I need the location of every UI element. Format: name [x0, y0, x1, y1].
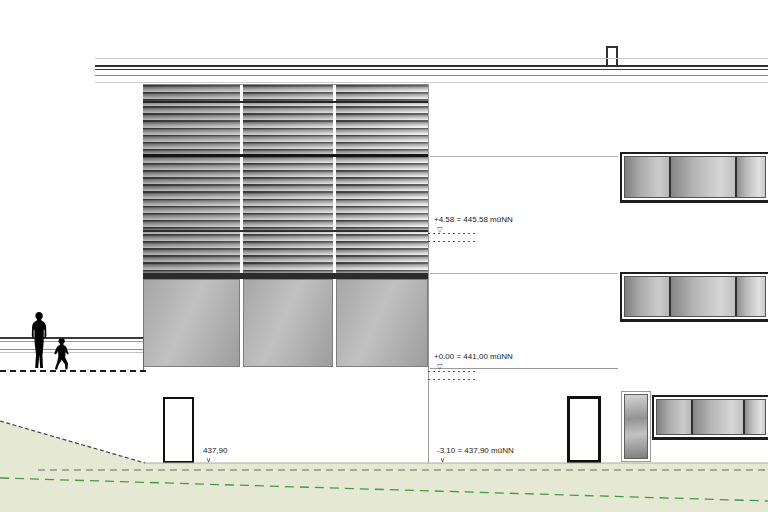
level-label: +0.00 = 441,00 müNN: [434, 352, 513, 361]
louver-track: [143, 230, 428, 232]
floor-line-ground: [430, 368, 618, 369]
level-dotted-line: [428, 241, 478, 242]
ribbon-window-upper: [620, 152, 768, 203]
glass-panel: [336, 279, 428, 367]
storefront-glazing: [143, 279, 428, 367]
louver-facade: [143, 84, 428, 279]
floor-line-mid: [430, 273, 618, 274]
level-marker-upper: +4.58 = 445.58 müNN ▽: [434, 215, 513, 224]
louver-panel: [336, 85, 428, 279]
level-dotted-line: [428, 379, 478, 380]
level-marker-icon: ▽: [437, 362, 442, 371]
glass-panel: [143, 279, 240, 367]
window-pane: [625, 277, 669, 316]
louver-panel: [143, 85, 240, 279]
roof-edge-line: [95, 65, 768, 67]
glass-panel: [243, 279, 333, 367]
adult-silhouette: [28, 312, 50, 370]
terrace-ground-line: [0, 370, 146, 372]
floor-slab-band: [143, 154, 428, 157]
window-pane: [625, 157, 669, 197]
roof-edge-line: [95, 75, 768, 76]
child-silhouette: [53, 338, 71, 370]
louver-panel: [243, 85, 333, 279]
roof-edge-line: [95, 58, 768, 59]
level-marker-basement: -3.10 = 437,90 müNN ∨: [437, 446, 514, 455]
railing-rail: [0, 341, 144, 342]
roof-edge-line: [95, 69, 768, 70]
roof-slab: [95, 58, 768, 83]
level-label: -3.10 = 437,90 müNN: [437, 446, 514, 455]
terrain: [0, 415, 768, 512]
level-dotted-line: [428, 233, 478, 234]
railing-rail: [0, 352, 144, 353]
wood-cladding-band: [622, 330, 768, 378]
floor-line-upper: [430, 156, 618, 157]
level-tick-icon: ∨: [206, 455, 211, 463]
roof-edge-line: [95, 82, 768, 83]
ribbon-window-mid: [620, 272, 768, 322]
window-pane: [671, 277, 735, 316]
level-label: +4.58 = 445.58 müNN: [434, 215, 513, 224]
level-tick-icon: ∨: [440, 455, 445, 463]
wood-cladding-band: [622, 95, 768, 143]
wood-cladding-band: [622, 215, 768, 263]
window-pane: [737, 277, 765, 316]
elevation-drawing: +4.58 = 445.58 müNN ▽ +0.00 = 441,00 müN…: [0, 0, 768, 512]
window-glazing: [624, 276, 766, 317]
railing-top-rail: [0, 337, 144, 339]
louver-track: [143, 101, 428, 103]
railing-end-post: [143, 337, 144, 372]
window-glazing: [624, 156, 766, 198]
level-label: 437,90: [203, 446, 227, 455]
level-marker-ground: +0.00 = 441,00 müNN ▽: [434, 352, 513, 361]
railing-rail: [0, 349, 144, 350]
level-dotted-line: [428, 371, 478, 372]
terrain-fill: [0, 421, 768, 512]
window-pane: [737, 157, 765, 197]
building-corner-line: [428, 84, 429, 463]
level-marker-terrain: 437,90 ∨: [203, 446, 227, 455]
window-pane: [671, 157, 735, 197]
